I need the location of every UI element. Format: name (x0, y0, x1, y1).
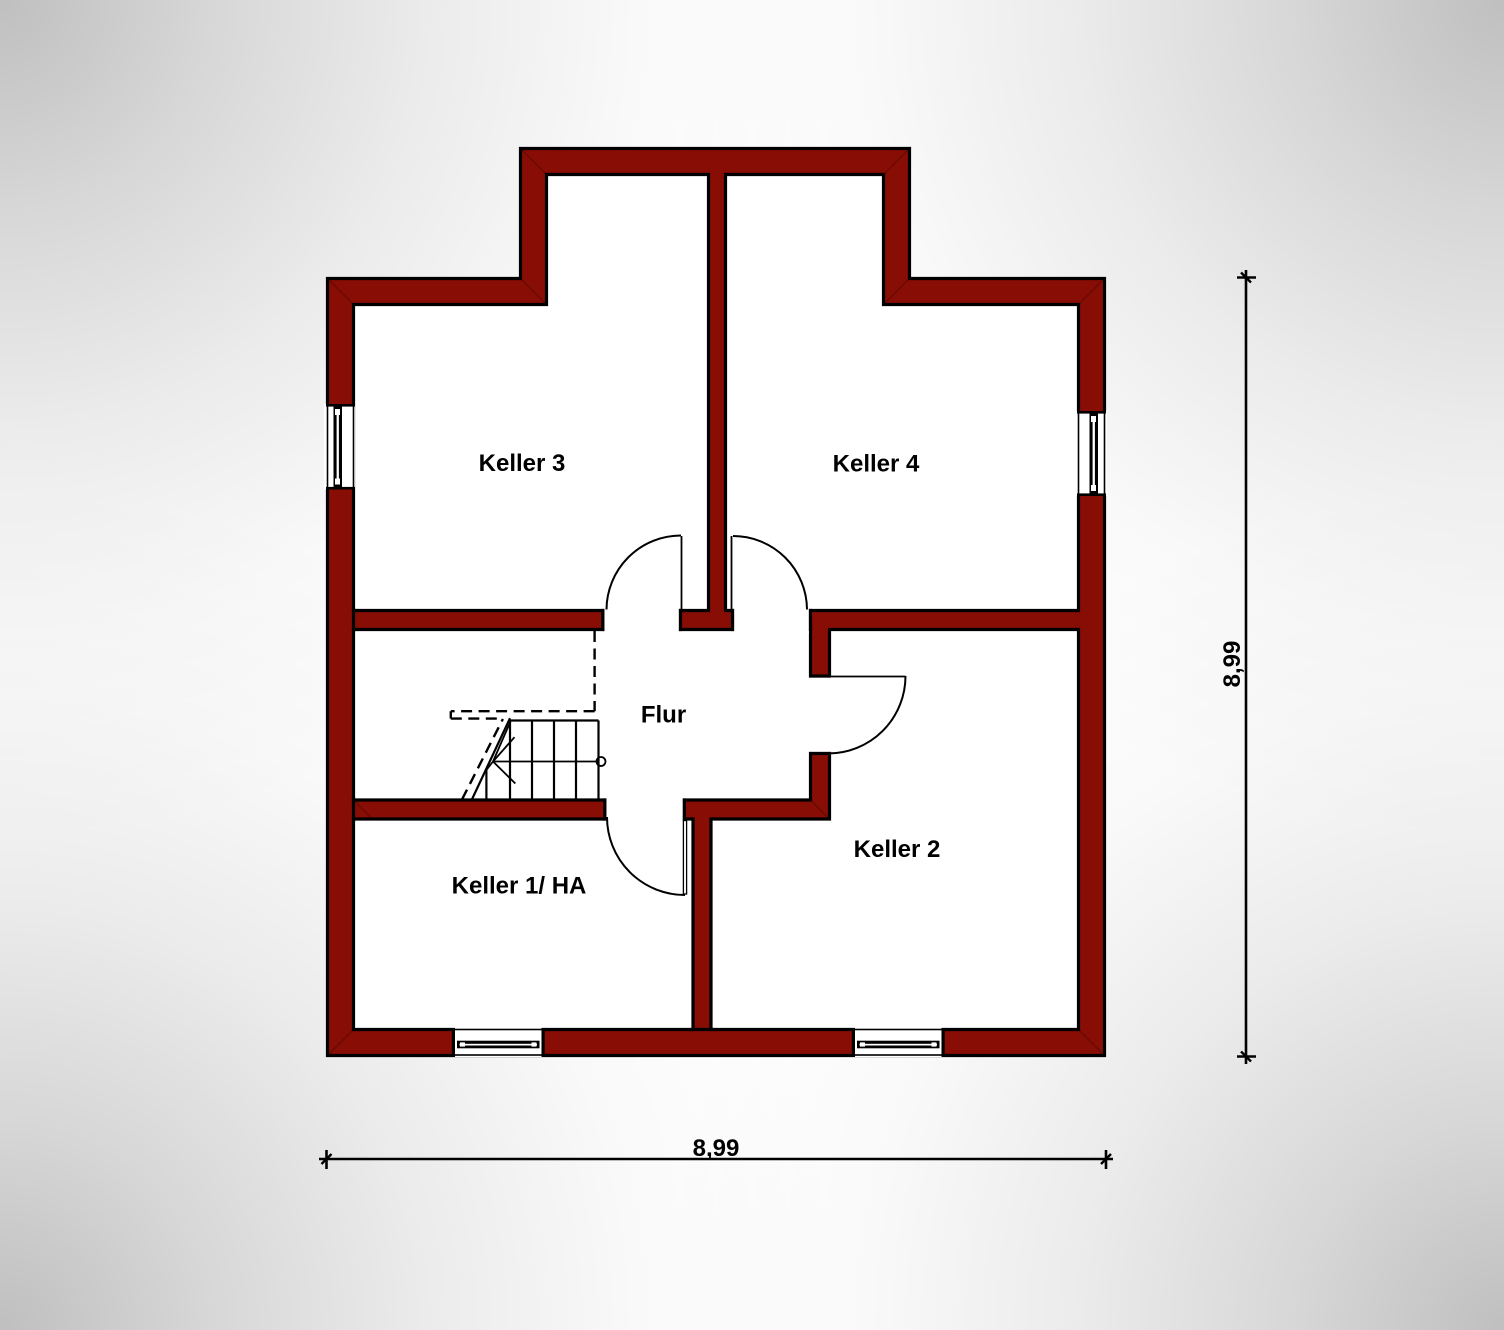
svg-text:Keller 3: Keller 3 (479, 450, 566, 477)
svg-text:Flur: Flur (641, 701, 686, 728)
svg-text:Keller 2: Keller 2 (854, 836, 941, 863)
svg-text:Keller 4: Keller 4 (833, 451, 920, 478)
svg-text:Keller 1/ HA: Keller 1/ HA (452, 873, 587, 900)
svg-text:8,99: 8,99 (1219, 641, 1246, 688)
svg-text:8,99: 8,99 (693, 1135, 740, 1162)
